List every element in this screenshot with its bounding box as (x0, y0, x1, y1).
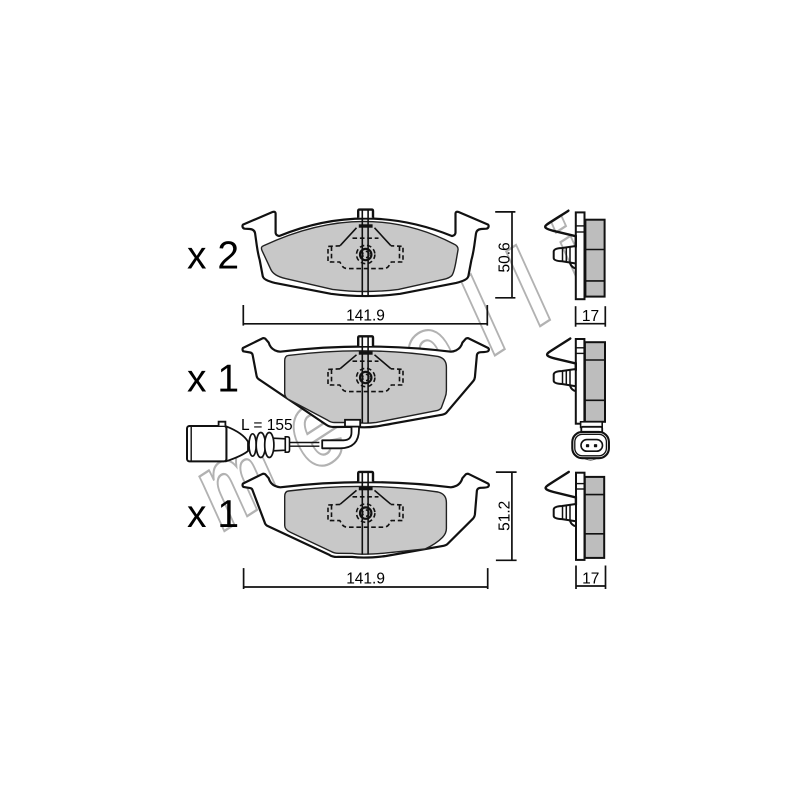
svg-text:x 1: x 1 (187, 493, 239, 536)
svg-text:50.6: 50.6 (496, 242, 513, 272)
svg-text:141.9: 141.9 (346, 571, 385, 588)
svg-text:141.9: 141.9 (346, 308, 385, 325)
svg-text:x 2: x 2 (187, 235, 239, 278)
svg-text:x 1: x 1 (187, 358, 239, 401)
svg-text:17: 17 (582, 308, 599, 325)
svg-text:17: 17 (582, 570, 599, 587)
svg-text:51.2: 51.2 (497, 501, 514, 531)
svg-text:L = 155: L = 155 (241, 417, 293, 434)
